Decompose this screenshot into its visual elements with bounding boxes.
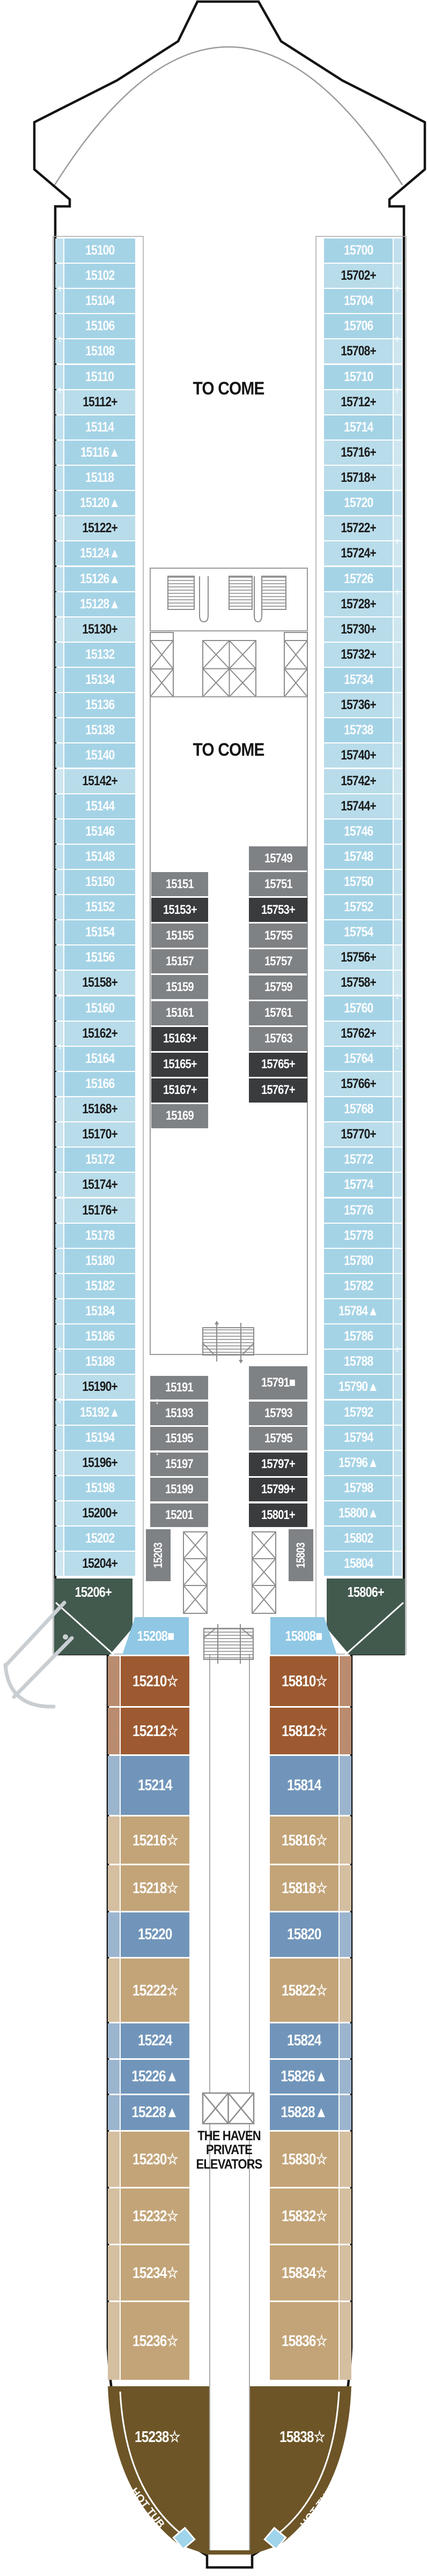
cabin-15134[interactable]: 15134 — [55, 668, 135, 692]
cabin-15740[interactable]: 15740+ — [324, 743, 402, 768]
cabin-15830[interactable]: 15830☆ — [270, 2132, 351, 2187]
cabin-15760[interactable]: 15760 — [324, 996, 402, 1021]
cabin-15102[interactable]: 15102 — [55, 264, 135, 288]
mid-open-area — [150, 697, 307, 1354]
cabin-15763[interactable]: 15763 — [249, 1027, 307, 1051]
connecting-rooms-arrow-icon: ↕ — [395, 284, 400, 293]
cabin-15204[interactable]: 15204+ — [55, 1552, 135, 1576]
cabin-15224[interactable]: 15224 — [108, 2023, 189, 2058]
cabin-15164[interactable]: 15164 — [55, 1047, 135, 1071]
deck-plan: TO COME TO COME THE HAVEN PRIVATE ELEVAT… — [0, 0, 427, 2576]
cabin-15160[interactable]: 15160 — [55, 996, 135, 1021]
cabin-15155[interactable]: 15155 — [151, 924, 208, 948]
cabin-15810[interactable]: 15810☆ — [270, 1656, 351, 1706]
cabin-15782[interactable]: 15782 — [324, 1274, 402, 1298]
cabin-15174[interactable]: 15174+ — [55, 1173, 135, 1197]
cabin-15804[interactable]: 15804 — [324, 1552, 402, 1576]
cabin-15767[interactable]: 15767+ — [249, 1078, 307, 1103]
cabin-15218[interactable]: 15218☆ — [108, 1865, 189, 1911]
cabin-15136[interactable]: 15136 — [55, 693, 135, 717]
cabin-15236[interactable]: 15236☆ — [108, 2302, 189, 2380]
cabin-15154[interactable]: 15154 — [55, 920, 135, 944]
cabin-15746[interactable]: 15746 — [324, 820, 402, 844]
cabin-15795[interactable]: 15795 — [249, 1427, 307, 1450]
cabin-15742[interactable]: 15742+ — [324, 769, 402, 793]
cabin-15156[interactable]: 15156 — [55, 945, 135, 970]
mid-room-stairs — [203, 1321, 254, 1364]
cabin-15210[interactable]: 15210☆ — [108, 1656, 189, 1706]
cabin-15794[interactable]: 15794 — [324, 1426, 402, 1450]
cabin-15226[interactable]: 15226▲ — [108, 2060, 189, 2094]
cabin-15750[interactable]: 15750 — [324, 870, 402, 894]
cabin-15166[interactable]: 15166 — [55, 1072, 135, 1096]
cabin-15146[interactable]: 15146 — [55, 820, 135, 844]
cabin-15768[interactable]: 15768 — [324, 1097, 402, 1121]
cabin-15776[interactable]: 15776 — [324, 1198, 402, 1223]
cabin-15167[interactable]: 15167+ — [151, 1078, 208, 1103]
cabin-15726[interactable]: 15726 — [324, 567, 402, 591]
cabin-15200[interactable]: 15200+ — [55, 1501, 135, 1525]
connecting-rooms-arrow-icon: ↕ — [395, 1345, 400, 1354]
connecting-rooms-arrow-icon: ↕ — [57, 385, 62, 394]
connecting-rooms-arrow-icon: ↕ — [57, 991, 62, 1000]
cabin-15722[interactable]: 15722+ — [324, 516, 402, 540]
cabin-15764[interactable]: 15764 — [324, 1047, 402, 1071]
cabin-15108[interactable]: 15108 — [55, 339, 135, 363]
cabin-15796[interactable]: 15796▲ — [324, 1451, 402, 1475]
cabin-15106[interactable]: 15106 — [55, 314, 135, 338]
connecting-rooms-arrow-icon: ↕ — [57, 284, 62, 293]
cabin-15759[interactable]: 15759 — [249, 976, 307, 1000]
cabin-15712[interactable]: 15712+ — [324, 390, 402, 414]
cabin-15114[interactable]: 15114 — [55, 415, 135, 440]
cabin-15744[interactable]: 15744+ — [324, 794, 402, 818]
cabin-15192[interactable]: 15192▲ — [55, 1401, 135, 1425]
cabin-15130[interactable]: 15130+ — [55, 617, 135, 642]
cabin-15158[interactable]: 15158+ — [55, 971, 135, 995]
cabin-15201[interactable]: 15201 — [150, 1503, 208, 1527]
cabin-15198[interactable]: 15198 — [55, 1476, 135, 1500]
cabin-15818[interactable]: 15818☆ — [270, 1865, 351, 1911]
cabin-15836[interactable]: 15836☆ — [270, 2302, 351, 2380]
cabin-15738[interactable]: 15738 — [324, 718, 402, 742]
cabin-15799[interactable]: 15799+ — [249, 1478, 307, 1501]
cabin-15228[interactable]: 15228▲ — [108, 2095, 189, 2130]
cabin-15142[interactable]: 15142+ — [55, 769, 135, 793]
stern-corridor — [209, 1654, 250, 2550]
cabin-15180[interactable]: 15180 — [55, 1249, 135, 1273]
to-come-forward-label: TO COME — [188, 378, 269, 399]
cabin-15168[interactable]: 15168+ — [55, 1097, 135, 1121]
cabin-15716[interactable]: 15716+ — [324, 441, 402, 465]
cabin-15791[interactable]: 15791■ — [249, 1366, 307, 1399]
cabin-15790[interactable]: 15790▲ — [324, 1375, 402, 1399]
cabin-15116[interactable]: 15116▲ — [55, 441, 135, 465]
cabin-15150[interactable]: 15150 — [55, 870, 135, 894]
cabin-15138[interactable]: 15138 — [55, 718, 135, 742]
cabin-15122[interactable]: 15122+ — [55, 516, 135, 540]
cabin-15220[interactable]: 15220 — [108, 1912, 189, 1957]
connecting-rooms-arrow-icon: ↕ — [395, 1041, 400, 1051]
cabin-15832[interactable]: 15832☆ — [270, 2188, 351, 2244]
cabin-15734[interactable]: 15734 — [324, 668, 402, 692]
cabin-15153[interactable]: 15153+ — [151, 898, 208, 922]
cabin-15798[interactable]: 15798 — [324, 1476, 402, 1500]
cabin-15124[interactable]: 15124▲ — [55, 541, 135, 565]
cabin-15182[interactable]: 15182 — [55, 1274, 135, 1298]
connecting-rooms-arrow-icon: ↕ — [395, 587, 400, 596]
cabin-15202[interactable]: 15202 — [55, 1527, 135, 1551]
connecting-rooms-arrow-icon: ↕ — [395, 385, 400, 394]
cabin-15784[interactable]: 15784▲ — [324, 1299, 402, 1323]
cabin-15186[interactable]: 15186 — [55, 1324, 135, 1349]
cabin-15128[interactable]: 15128▲ — [55, 592, 135, 616]
cabin-15184[interactable]: 15184 — [55, 1299, 135, 1323]
cabin-15704[interactable]: 15704 — [324, 289, 402, 313]
cabin-15144[interactable]: 15144 — [55, 794, 135, 818]
cabin-15826[interactable]: 15826▲ — [270, 2060, 351, 2094]
cabin-15752[interactable]: 15752 — [324, 895, 402, 919]
cabin-15820[interactable]: 15820 — [270, 1912, 351, 1957]
cabin-15800[interactable]: 15800▲ — [324, 1501, 402, 1525]
cabin-15214[interactable]: 15214 — [108, 1756, 189, 1815]
cabin-15834[interactable]: 15834☆ — [270, 2245, 351, 2300]
connecting-rooms-arrow-icon: ↕ — [57, 1345, 62, 1354]
cabin-15802[interactable]: 15802 — [324, 1527, 402, 1551]
cabin-15780[interactable]: 15780 — [324, 1249, 402, 1273]
cabin-15706[interactable]: 15706 — [324, 314, 402, 338]
cabin-15766[interactable]: 15766+ — [324, 1072, 402, 1096]
cabin-15765[interactable]: 15765+ — [249, 1053, 307, 1077]
cabin-15110[interactable]: 15110 — [55, 365, 135, 389]
cabin-15120[interactable]: 15120▲ — [55, 491, 135, 515]
cabin-15732[interactable]: 15732+ — [324, 643, 402, 667]
to-come-mid-label: TO COME — [188, 740, 269, 761]
cabin-15803[interactable]: 15803 — [289, 1529, 313, 1581]
connecting-rooms-arrow-icon: ↕ — [395, 334, 400, 344]
cabin-15708[interactable]: 15708+ — [324, 339, 402, 363]
cabin-15748[interactable]: 15748 — [324, 845, 402, 869]
cabin-15161[interactable]: 15161 — [151, 1001, 208, 1025]
cabin-15724[interactable]: 15724+ — [324, 541, 402, 565]
cabin-15172[interactable]: 15172 — [55, 1148, 135, 1172]
cabin-15188[interactable]: 15188 — [55, 1350, 135, 1374]
cabin-15822[interactable]: 15822☆ — [270, 1959, 351, 2022]
cabin-15772[interactable]: 15772 — [324, 1148, 402, 1172]
connecting-rooms-arrow-icon: ↕ — [57, 1395, 62, 1404]
cabin-15730[interactable]: 15730+ — [324, 617, 402, 642]
midship-elevators — [150, 632, 307, 697]
cabin-15178[interactable]: 15178 — [55, 1224, 135, 1248]
cabin-15230[interactable]: 15230☆ — [108, 2132, 189, 2187]
cabin-15232[interactable]: 15232☆ — [108, 2188, 189, 2244]
cabin-15824[interactable]: 15824 — [270, 2023, 351, 2058]
cabin-15104[interactable]: 15104 — [55, 289, 135, 313]
cabin-15757[interactable]: 15757 — [249, 949, 307, 973]
cabin-15762[interactable]: 15762+ — [324, 1022, 402, 1046]
cabin-15163[interactable]: 15163+ — [151, 1027, 208, 1051]
cabin-15157[interactable]: 15157 — [151, 949, 208, 973]
cabin-15755[interactable]: 15755 — [249, 924, 307, 948]
cabin-15720[interactable]: 15720 — [324, 491, 402, 515]
cabin-15196[interactable]: 15196+ — [55, 1451, 135, 1475]
bow-arc — [55, 47, 402, 185]
cabin-15736[interactable]: 15736+ — [324, 693, 402, 717]
cabin-15758[interactable]: 15758+ — [324, 971, 402, 995]
cabin-15710[interactable]: 15710 — [324, 365, 402, 389]
cabin-15786[interactable]: 15786 — [324, 1324, 402, 1349]
connecting-rooms-arrow-icon: ↕ — [57, 1041, 62, 1051]
cabin-15212[interactable]: 15212☆ — [108, 1708, 189, 1754]
cabin-15754[interactable]: 15754 — [324, 920, 402, 944]
cabin-15793[interactable]: 15793 — [249, 1402, 307, 1425]
cabin-15702[interactable]: 15702+ — [324, 264, 402, 288]
cabin-15140[interactable]: 15140 — [55, 743, 135, 768]
cabin-15203[interactable]: 15203 — [146, 1529, 171, 1581]
cabin-15169[interactable]: 15169 — [151, 1104, 208, 1128]
cabin-15234[interactable]: 15234☆ — [108, 2245, 189, 2300]
cabin-15816[interactable]: 15816☆ — [270, 1816, 351, 1864]
cabin-15753[interactable]: 15753+ — [249, 898, 307, 922]
cabin-15238[interactable]: 15238☆ — [121, 2423, 193, 2451]
cabin-15749[interactable]: 15749 — [249, 846, 307, 870]
cabin-15216[interactable]: 15216☆ — [108, 1816, 189, 1864]
cabin-15152[interactable]: 15152 — [55, 895, 135, 919]
cabin-15118[interactable]: 15118 — [55, 466, 135, 490]
cabin-15718[interactable]: 15718+ — [324, 466, 402, 490]
cabin-15728[interactable]: 15728+ — [324, 592, 402, 616]
cabin-15222[interactable]: 15222☆ — [108, 1959, 189, 2022]
connecting-rooms-arrow-icon: ↕ — [57, 334, 62, 344]
aft-elevators — [183, 1532, 276, 1613]
connecting-rooms-arrow-icon: ↕ — [395, 537, 400, 546]
cabin-15199[interactable]: 15199 — [150, 1478, 208, 1501]
cabin-15190[interactable]: 15190+ — [55, 1375, 135, 1399]
cabin-15165[interactable]: 15165+ — [151, 1053, 208, 1077]
cabin-15100[interactable]: 15100 — [55, 239, 135, 263]
connecting-rooms-arrow-icon: ↕ — [155, 1447, 160, 1456]
cabin-15112[interactable]: 15112+ — [55, 390, 135, 414]
cabin-15194[interactable]: 15194 — [55, 1426, 135, 1450]
cabin-15126[interactable]: 15126▲ — [55, 567, 135, 591]
cabin-15774[interactable]: 15774 — [324, 1173, 402, 1197]
connecting-rooms-arrow-icon: ↕ — [395, 991, 400, 1000]
cabin-15801[interactable]: 15801+ — [249, 1503, 307, 1527]
cabin-15700[interactable]: 15700 — [324, 239, 402, 263]
cabin-15778[interactable]: 15778 — [324, 1224, 402, 1248]
cabin-15756[interactable]: 15756+ — [324, 945, 402, 970]
cabin-15770[interactable]: 15770+ — [324, 1122, 402, 1146]
cabin-15151[interactable]: 15151 — [151, 872, 208, 896]
cabin-15792[interactable]: 15792 — [324, 1401, 402, 1425]
cabin-15170[interactable]: 15170+ — [55, 1122, 135, 1146]
cabin-15714[interactable]: 15714 — [324, 415, 402, 440]
cabin-15148[interactable]: 15148 — [55, 845, 135, 869]
cabin-15159[interactable]: 15159 — [151, 975, 208, 999]
cabin-15162[interactable]: 15162+ — [55, 1022, 135, 1046]
cabin-15132[interactable]: 15132 — [55, 643, 135, 667]
cabin-15176[interactable]: 15176+ — [55, 1198, 135, 1223]
cabin-15761[interactable]: 15761 — [249, 1001, 307, 1025]
cabin-15797[interactable]: 15797+ — [249, 1453, 307, 1476]
cabin-15814[interactable]: 15814 — [270, 1756, 351, 1815]
connecting-rooms-arrow-icon: ↕ — [155, 1396, 160, 1405]
cabin-15812[interactable]: 15812☆ — [270, 1708, 351, 1754]
haven-private-elevators-label: THE HAVEN PRIVATE ELEVATORS — [192, 2129, 267, 2171]
cabin-15788[interactable]: 15788 — [324, 1350, 402, 1374]
cabin-15838[interactable]: 15838☆ — [266, 2423, 338, 2451]
cabin-15828[interactable]: 15828▲ — [270, 2095, 351, 2130]
cabin-15751[interactable]: 15751 — [249, 872, 307, 896]
